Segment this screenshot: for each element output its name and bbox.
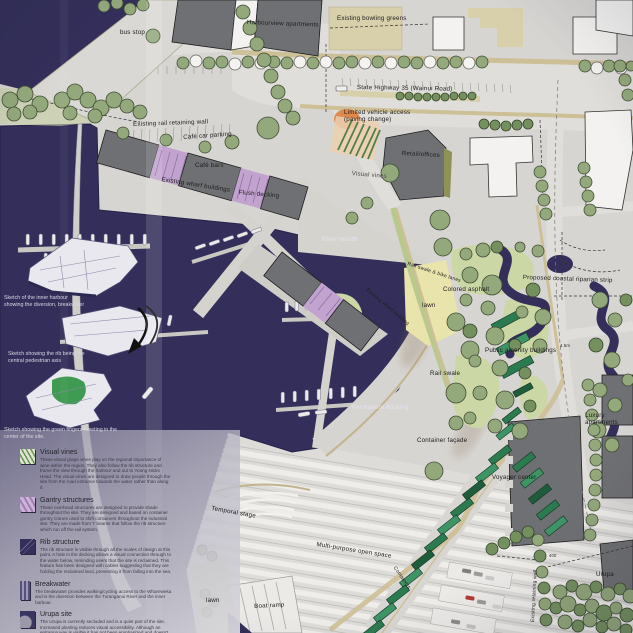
label-colored-asphalt: Colored asphalt	[443, 286, 489, 293]
masterplan-poster: bus stop Harbourview apartments Existing…	[0, 0, 633, 633]
sketch-caption-inner-harbour: Sketch of the inner harbour showing the …	[4, 295, 84, 309]
legend-body: These visual grape vines play on the reg…	[40, 457, 172, 491]
legend: Visual vines These visual grape vines pl…	[20, 449, 172, 633]
label-river-mouth: River mouth	[322, 236, 358, 243]
label-lawn-bottom: lawn	[206, 597, 220, 604]
label-existing-bowling-greens: Existing bowling greens	[337, 15, 407, 22]
label-permanent-docking: Permanent docking	[352, 404, 409, 411]
label-lawn-mid: lawn	[422, 302, 436, 309]
label-public-amenity-buildings: Public amenity buildings	[485, 347, 556, 354]
legend-body: These overhead structures are designed t…	[40, 505, 172, 533]
legend-body: The breakwater provides walking/cycling …	[35, 589, 172, 606]
label-cafe-bars: Café bars	[195, 162, 224, 169]
sketch-caption-green-fingers: Sketch showing the green fingers meeting…	[4, 427, 117, 441]
legend-item-visual-vines: Visual vines These visual grape vines pl…	[20, 449, 172, 491]
legend-title: Rib structure	[40, 539, 172, 546]
label-bus-stop: bus stop	[120, 29, 145, 36]
legend-body: The Urupa is currently secluded and is a…	[40, 619, 172, 633]
gantry-structures-swatch-icon	[20, 497, 35, 512]
urupa-site-swatch-icon	[20, 611, 35, 628]
rib-structure-swatch-icon	[20, 539, 35, 554]
legend-title: Urupa site	[40, 611, 172, 618]
label-voyager-center: Voyager center	[492, 474, 536, 481]
label-rail-swale: Rail swale	[430, 370, 460, 377]
legend-item-gantry-structures: Gantry structures These overhead structu…	[20, 497, 172, 533]
legend-body: The rib structure is visible through all…	[40, 547, 172, 575]
legend-title: Breakwater	[35, 581, 172, 588]
legend-item-urupa-site: Urupa site The Urupa is currently seclud…	[20, 611, 172, 633]
legend-title: Gantry structures	[40, 497, 172, 504]
breakwater-swatch-icon	[20, 581, 30, 600]
label-urupa: Urupa	[596, 571, 614, 578]
label-limited-vehicle-access: Limited vehicle access (paving change)	[344, 109, 410, 123]
sketch-caption-rib-axis: Sketch showing the rib being the central…	[8, 351, 85, 365]
label-luxury-apartments: Luxury apartments	[585, 412, 633, 426]
label-dimension-45m: 4.5m	[560, 344, 570, 349]
label-dimension-400: 400	[549, 554, 557, 559]
legend-title: Visual vines	[40, 449, 172, 456]
legend-item-breakwater: Breakwater The breakwater provides walki…	[20, 581, 172, 606]
legend-item-rib-structure: Rib structure The rib structure is visib…	[20, 539, 172, 575]
visual-vines-swatch-icon	[20, 449, 35, 464]
label-container-facade: Container façade	[417, 437, 467, 444]
